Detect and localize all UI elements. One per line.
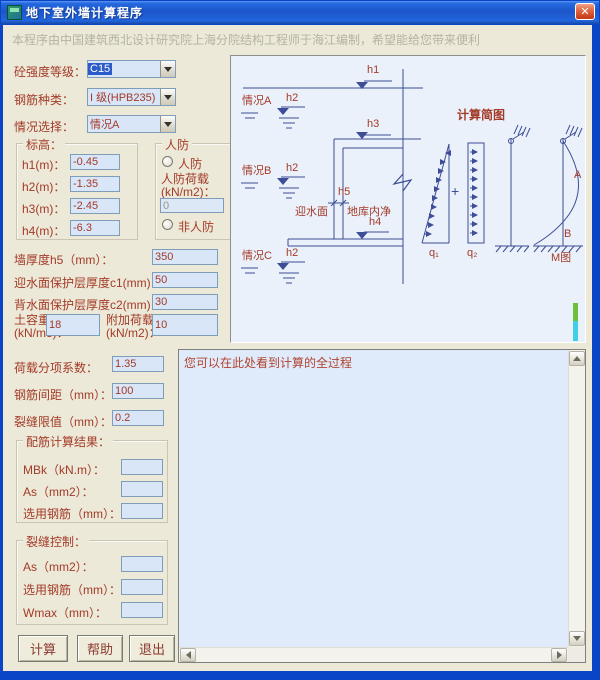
- h2-c-label: h2: [286, 247, 298, 259]
- close-icon: ✕: [580, 5, 589, 18]
- moment-a-label: A: [574, 169, 581, 181]
- calculation-log-area[interactable]: 您可以在此处看到计算的全过程: [178, 349, 586, 663]
- dropdown-button[interactable]: [160, 89, 175, 105]
- wmax-label: Wmax（mm）：: [23, 604, 107, 621]
- civil-defense-radio[interactable]: [162, 156, 173, 167]
- load-factor-label: 荷载分项系数：: [14, 359, 98, 376]
- civil-load-input[interactable]: [160, 198, 224, 213]
- cover1-input[interactable]: [152, 272, 218, 288]
- title-bar: 地下室外墙计算程序: [1, 1, 599, 24]
- h4-input[interactable]: [70, 220, 120, 236]
- right-arrow-icon: [557, 651, 562, 659]
- rebar-type-combobox[interactable]: I 级(HPB235): [87, 88, 176, 106]
- q2-load-label: q₂: [467, 247, 477, 259]
- app-window: 地下室外墙计算程序 ✕ 本程序由中国建筑西北设计研究院上海分院结构工程师于海江编…: [0, 0, 600, 680]
- reinforcement-results-title: 配筋计算结果：: [23, 433, 113, 450]
- case-select-value: 情况A: [88, 116, 160, 132]
- diagram-panel: 计算简图 h1 情况A h2 h3 情况B h2 h5 迎水面 地库内净 h4 …: [230, 55, 586, 343]
- scroll-down-button[interactable]: [569, 631, 585, 646]
- h1-label: h1(m)：: [22, 156, 65, 173]
- elevation-group-title: 标高：: [23, 136, 65, 153]
- rebar-spacing-label: 钢筋间距（mm）：: [14, 386, 112, 403]
- civil-defense-group-title: 人防: [162, 136, 192, 153]
- concrete-grade-label: 砼强度等级：: [14, 63, 86, 80]
- exit-button[interactable]: 退出: [129, 635, 175, 662]
- vertical-scrollbar[interactable]: [568, 350, 585, 647]
- crack-rebar-output[interactable]: [121, 579, 163, 595]
- plus-sign: +: [451, 183, 459, 199]
- mbk-label: MBk（kN.m）：: [23, 461, 105, 478]
- selected-rebar-output[interactable]: [121, 503, 163, 519]
- dropdown-button[interactable]: [160, 116, 175, 132]
- h2-a-label: h2: [286, 92, 298, 104]
- concrete-grade-value: C15: [88, 63, 112, 75]
- h3-label: h3(m)：: [22, 200, 65, 217]
- case-select-label: 情况选择：: [14, 118, 74, 135]
- scroll-left-button[interactable]: [180, 648, 196, 662]
- h5-mark-label: h5: [338, 186, 350, 198]
- h2-b-label: h2: [286, 162, 298, 174]
- rebar-type-label: 钢筋种类：: [14, 91, 74, 108]
- dropdown-button[interactable]: [160, 61, 175, 77]
- h2-input[interactable]: [70, 176, 120, 192]
- concrete-grade-combobox[interactable]: C15: [87, 60, 176, 78]
- scroll-up-button[interactable]: [569, 351, 585, 366]
- cover2-input[interactable]: [152, 294, 218, 310]
- down-arrow-icon: [573, 636, 581, 641]
- rebar-type-value: I 级(HPB235): [88, 89, 160, 105]
- as-output[interactable]: [121, 481, 163, 497]
- non-civil-defense-radio[interactable]: [162, 219, 173, 230]
- diagram-drawing: [231, 56, 585, 342]
- wall-thickness-label: 墙厚度h5（mm）：: [14, 251, 113, 268]
- crack-limit-input[interactable]: [112, 410, 164, 426]
- h3-mark-label: h3: [367, 118, 379, 130]
- h4-mark-label: h4: [369, 216, 381, 228]
- case-c-label: 情况C: [242, 247, 272, 263]
- h1-input[interactable]: [70, 154, 120, 170]
- wmax-output[interactable]: [121, 602, 163, 618]
- app-icon: [7, 5, 22, 20]
- extra-load-input[interactable]: [152, 314, 218, 336]
- chevron-down-icon: [164, 95, 172, 100]
- soil-weight-input[interactable]: [46, 314, 100, 336]
- close-button[interactable]: ✕: [575, 3, 595, 20]
- h4-label: h4(m)：: [22, 222, 65, 239]
- selected-rebar-label: 选用钢筋（mm）：: [23, 505, 121, 522]
- h2-label: h2(m)：: [22, 178, 65, 195]
- chevron-down-icon: [164, 122, 172, 127]
- load-factor-input[interactable]: [112, 356, 164, 372]
- green-marker-artifact: [573, 303, 578, 321]
- scroll-right-button[interactable]: [551, 648, 567, 662]
- crack-control-title: 裂缝控制：: [23, 533, 89, 550]
- crack-as-output[interactable]: [121, 556, 163, 572]
- moment-diagram-label: M图: [551, 249, 571, 265]
- diagram-title: 计算简图: [457, 106, 505, 123]
- crack-limit-label: 裂缝限值（mm）：: [14, 413, 112, 430]
- left-arrow-icon: [186, 651, 191, 659]
- cover1-label: 迎水面保护层厚度c1(mm)：: [14, 274, 163, 291]
- case-b-label: 情况B: [242, 162, 271, 178]
- calculate-button[interactable]: 计算: [18, 635, 68, 662]
- water-facing-label: 迎水面: [295, 203, 328, 219]
- case-select-combobox[interactable]: 情况A: [87, 115, 176, 133]
- h3-input[interactable]: [70, 198, 120, 214]
- crack-rebar-label: 选用钢筋（mm）：: [23, 581, 121, 598]
- wall-thickness-input[interactable]: [152, 249, 218, 265]
- scrollbar-corner: [568, 647, 585, 662]
- author-note: 本程序由中国建筑西北设计研究院上海分院结构工程师于海江编制，希望能给您带来便利: [12, 31, 480, 48]
- crack-as-label: As（mm2）：: [23, 558, 94, 575]
- q1-load-label: q₁: [429, 247, 439, 259]
- horizontal-scrollbar[interactable]: [179, 647, 568, 662]
- case-a-label: 情况A: [242, 92, 271, 108]
- moment-b-label: B: [564, 228, 571, 240]
- window-title: 地下室外墙计算程序: [26, 4, 143, 21]
- log-placeholder-text: 您可以在此处看到计算的全过程: [184, 354, 352, 371]
- up-arrow-icon: [573, 356, 581, 361]
- cyan-marker-artifact: [573, 321, 578, 341]
- as-label: As（mm2）：: [23, 483, 94, 500]
- chevron-down-icon: [164, 67, 172, 72]
- mbk-output[interactable]: [121, 459, 163, 475]
- non-civil-defense-radio-label: 非人防: [178, 218, 214, 235]
- h1-mark-label: h1: [367, 64, 379, 76]
- rebar-spacing-input[interactable]: [112, 383, 164, 399]
- help-button[interactable]: 帮助: [77, 635, 123, 662]
